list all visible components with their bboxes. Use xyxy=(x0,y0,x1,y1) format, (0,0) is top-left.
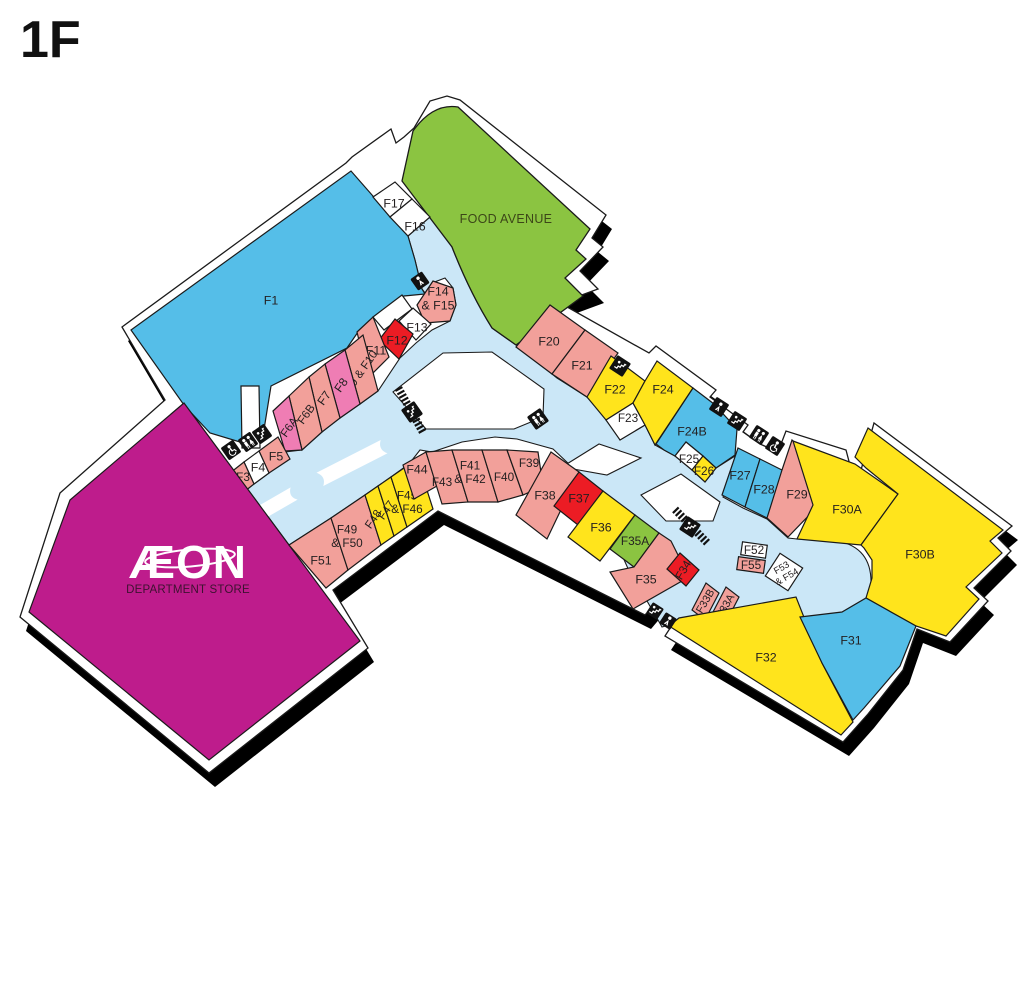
svg-text:F23: F23 xyxy=(618,411,639,425)
svg-text:F38: F38 xyxy=(534,488,555,502)
svg-text:F51: F51 xyxy=(310,553,331,567)
svg-text:ÆON: ÆON xyxy=(129,536,247,588)
svg-text:F24: F24 xyxy=(652,382,673,396)
svg-text:F24B: F24B xyxy=(677,424,707,438)
svg-text:F1: F1 xyxy=(264,293,279,307)
svg-text:DEPARTMENT STORE: DEPARTMENT STORE xyxy=(126,584,250,596)
svg-text:F32: F32 xyxy=(755,650,776,664)
svg-text:1F: 1F xyxy=(20,11,81,69)
svg-text:F43: F43 xyxy=(432,475,453,489)
svg-text:F5: F5 xyxy=(269,449,284,463)
svg-text:F21: F21 xyxy=(571,358,592,372)
svg-text:F16: F16 xyxy=(404,219,425,233)
svg-text:F20: F20 xyxy=(538,334,559,348)
svg-text:F28: F28 xyxy=(753,482,774,496)
svg-text:F35A: F35A xyxy=(621,534,649,548)
svg-text:F4: F4 xyxy=(251,460,266,474)
svg-text:F30B: F30B xyxy=(905,547,935,561)
svg-text:F22: F22 xyxy=(604,382,625,396)
svg-text:F39: F39 xyxy=(519,456,539,470)
svg-text:F52: F52 xyxy=(744,543,764,557)
svg-text:F40: F40 xyxy=(494,470,515,484)
svg-text:F12: F12 xyxy=(386,333,407,347)
svg-text:F26: F26 xyxy=(694,464,715,478)
svg-text:F29: F29 xyxy=(786,487,807,501)
svg-text:F27: F27 xyxy=(729,468,750,482)
svg-text:FOOD AVENUE: FOOD AVENUE xyxy=(460,212,553,226)
svg-text:F35: F35 xyxy=(635,572,656,586)
svg-text:F36: F36 xyxy=(590,520,611,534)
svg-text:F55: F55 xyxy=(741,558,762,572)
svg-text:F30A: F30A xyxy=(832,502,862,516)
svg-text:F37: F37 xyxy=(568,491,589,505)
svg-text:F31: F31 xyxy=(840,633,861,647)
svg-text:F44: F44 xyxy=(406,462,427,476)
